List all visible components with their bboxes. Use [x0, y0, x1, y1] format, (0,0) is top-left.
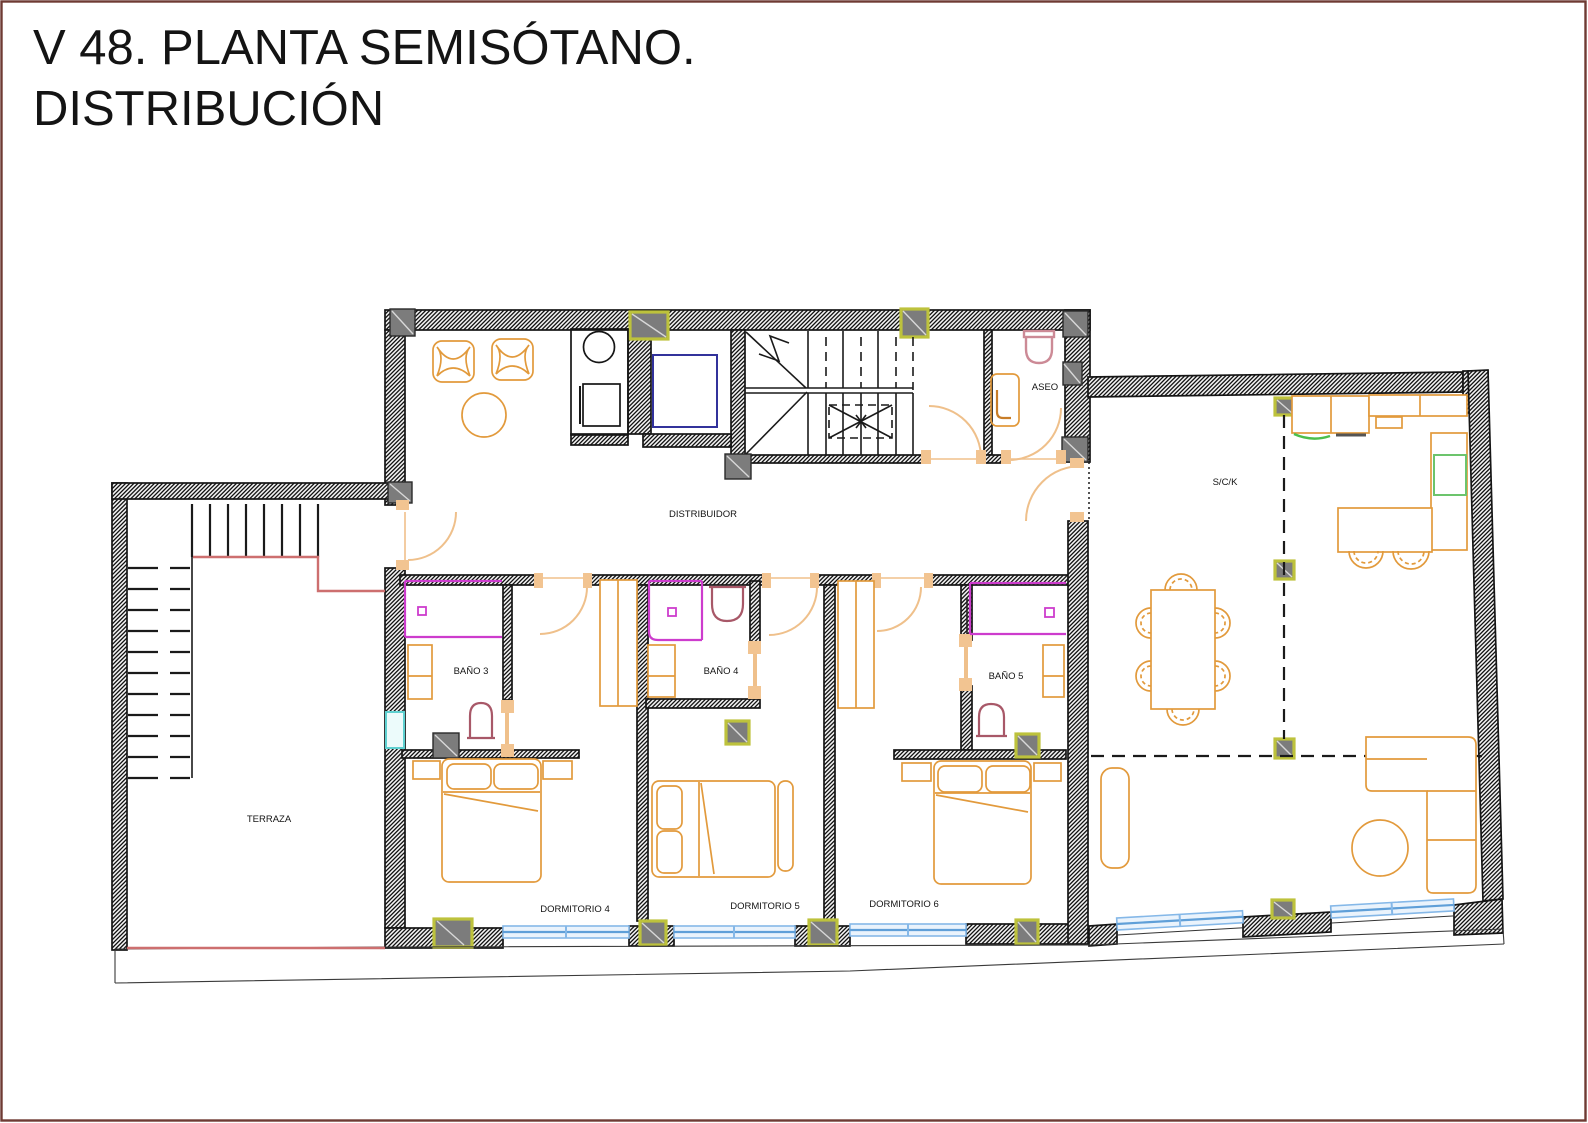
- svg-text:TERRAZA: TERRAZA: [247, 814, 292, 825]
- svg-text:S/C/K: S/C/K: [1213, 477, 1238, 488]
- svg-text:BAÑO 5: BAÑO 5: [989, 671, 1024, 682]
- svg-text:DISTRIBUCIÓN: DISTRIBUCIÓN: [33, 82, 384, 136]
- svg-text:DORMITORIO 6: DORMITORIO 6: [869, 899, 939, 910]
- svg-text:DISTRIBUIDOR: DISTRIBUIDOR: [669, 509, 737, 520]
- svg-text:DORMITORIO 4: DORMITORIO 4: [540, 904, 610, 915]
- svg-text:BAÑO 3: BAÑO 3: [454, 666, 489, 677]
- svg-text:V 48. PLANTA SEMISÓTANO.: V 48. PLANTA SEMISÓTANO.: [33, 21, 696, 75]
- svg-text:BAÑO 4: BAÑO 4: [704, 666, 739, 677]
- svg-text:DORMITORIO 5: DORMITORIO 5: [730, 901, 800, 912]
- svg-text:ASEO: ASEO: [1032, 382, 1058, 393]
